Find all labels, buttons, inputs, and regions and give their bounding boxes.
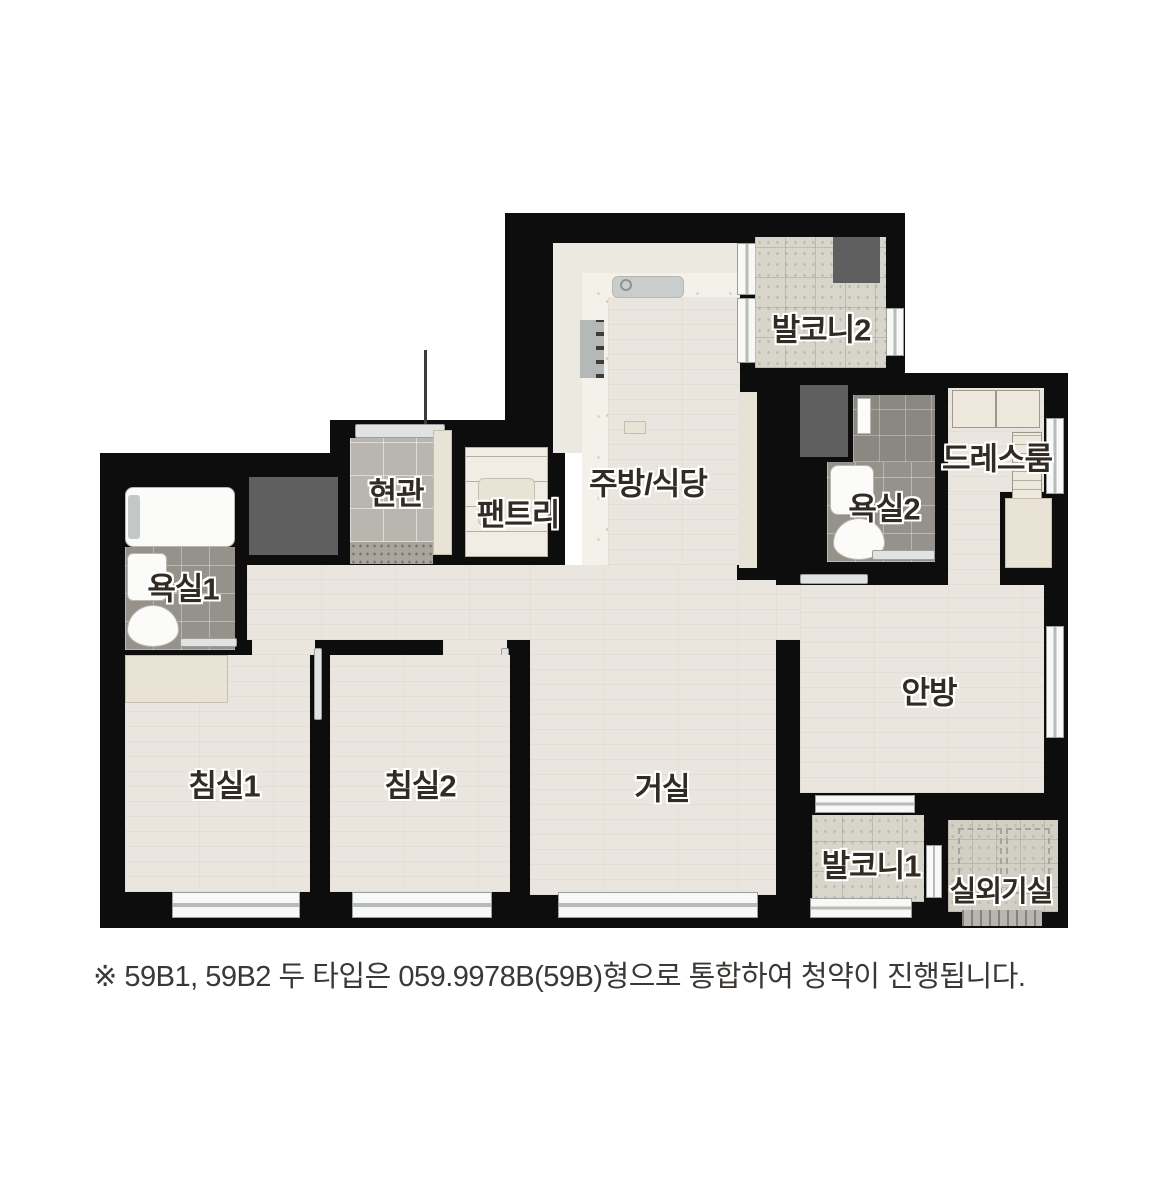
- dressroom-wardrobe-left: [952, 390, 996, 428]
- kitchen-balcony2-window-lower: [737, 298, 757, 363]
- label-bathroom2: 욕실2: [848, 484, 919, 529]
- kitchen-faucet-icon: [620, 279, 632, 291]
- bathroom2-duct-box: [800, 385, 848, 457]
- label-pantry: 팬트리: [477, 490, 560, 535]
- label-kitchen-dining: 주방/식당: [589, 459, 707, 504]
- dressroom-wardrobe-right: [996, 390, 1040, 428]
- bathroom2-door: [872, 550, 935, 560]
- label-balcony2: 발코니2: [772, 305, 871, 350]
- label-dressroom: 드레스룸: [942, 434, 1052, 479]
- bedroom2-window: [352, 892, 492, 918]
- kitchen-counter-band-left: [553, 243, 582, 453]
- entrance-door: [355, 424, 445, 438]
- kitchen-cooktop: [580, 320, 604, 378]
- label-bedroom2: 침실2: [384, 761, 455, 806]
- kitchen-small-item: [624, 421, 646, 434]
- living-room-window: [558, 892, 758, 918]
- living-room-floor-right: [737, 580, 776, 895]
- floor-plan-canvas: 주방/식당 발코니2 드레스룸 욕실2 현관 팬트리 욕실1 안방 거실 침실1…: [0, 0, 1160, 1200]
- bedroom1-door: [314, 648, 322, 720]
- kitchen-right-wall-finish: [739, 392, 757, 568]
- entrance-closet: [249, 477, 338, 555]
- balcony2-right-window: [886, 308, 904, 356]
- bedroom1-window: [172, 892, 300, 918]
- bedroom1-wardrobe: [125, 655, 228, 703]
- label-bedroom1: 침실1: [188, 761, 259, 806]
- bathroom1-door: [180, 638, 237, 647]
- balcony1-outdoor-door: [926, 845, 942, 898]
- label-master-bedroom: 안방: [901, 668, 956, 713]
- label-living-room: 거실: [634, 764, 689, 809]
- hall-to-master-opening: [776, 585, 800, 640]
- living-room-floor: [530, 565, 737, 895]
- label-entrance: 현관: [368, 469, 423, 514]
- dressroom-floor-lower: [948, 492, 1000, 585]
- kitchen-balcony2-window-upper: [737, 243, 757, 295]
- entrance-door-antenna-line: [424, 350, 427, 426]
- bathroom2-shower-head: [857, 398, 871, 434]
- footnote-text: ※ 59B1, 59B2 두 타입은 059.9978B(59B)형으로 통합하…: [93, 953, 1025, 995]
- balcony1-upper-window: [815, 795, 915, 813]
- label-balcony1: 발코니1: [822, 841, 921, 886]
- wall-kitchen-left: [505, 213, 555, 453]
- balcony2-ac-pad: [833, 237, 880, 283]
- entrance-mat: [350, 542, 433, 564]
- bathroom1-toilet: [127, 605, 179, 647]
- master-right-window: [1046, 626, 1064, 738]
- label-outdoor-unit-room: 실외기실: [950, 868, 1053, 910]
- bedroom1-door-opening: [252, 640, 315, 655]
- master-closet: [1005, 498, 1052, 568]
- master-bedroom-door: [800, 574, 868, 584]
- outdoor-unit-vent: [962, 910, 1042, 926]
- bathroom1-tub-faucet: [128, 495, 140, 539]
- entrance-shoe-cabinet: [433, 430, 452, 555]
- label-bathroom1: 욕실1: [147, 564, 218, 609]
- balcony1-lower-window: [810, 898, 912, 918]
- bathroom1-bathtub: [125, 487, 235, 547]
- hallway-floor: [247, 565, 530, 640]
- bedroom2-door-opening: [443, 640, 507, 655]
